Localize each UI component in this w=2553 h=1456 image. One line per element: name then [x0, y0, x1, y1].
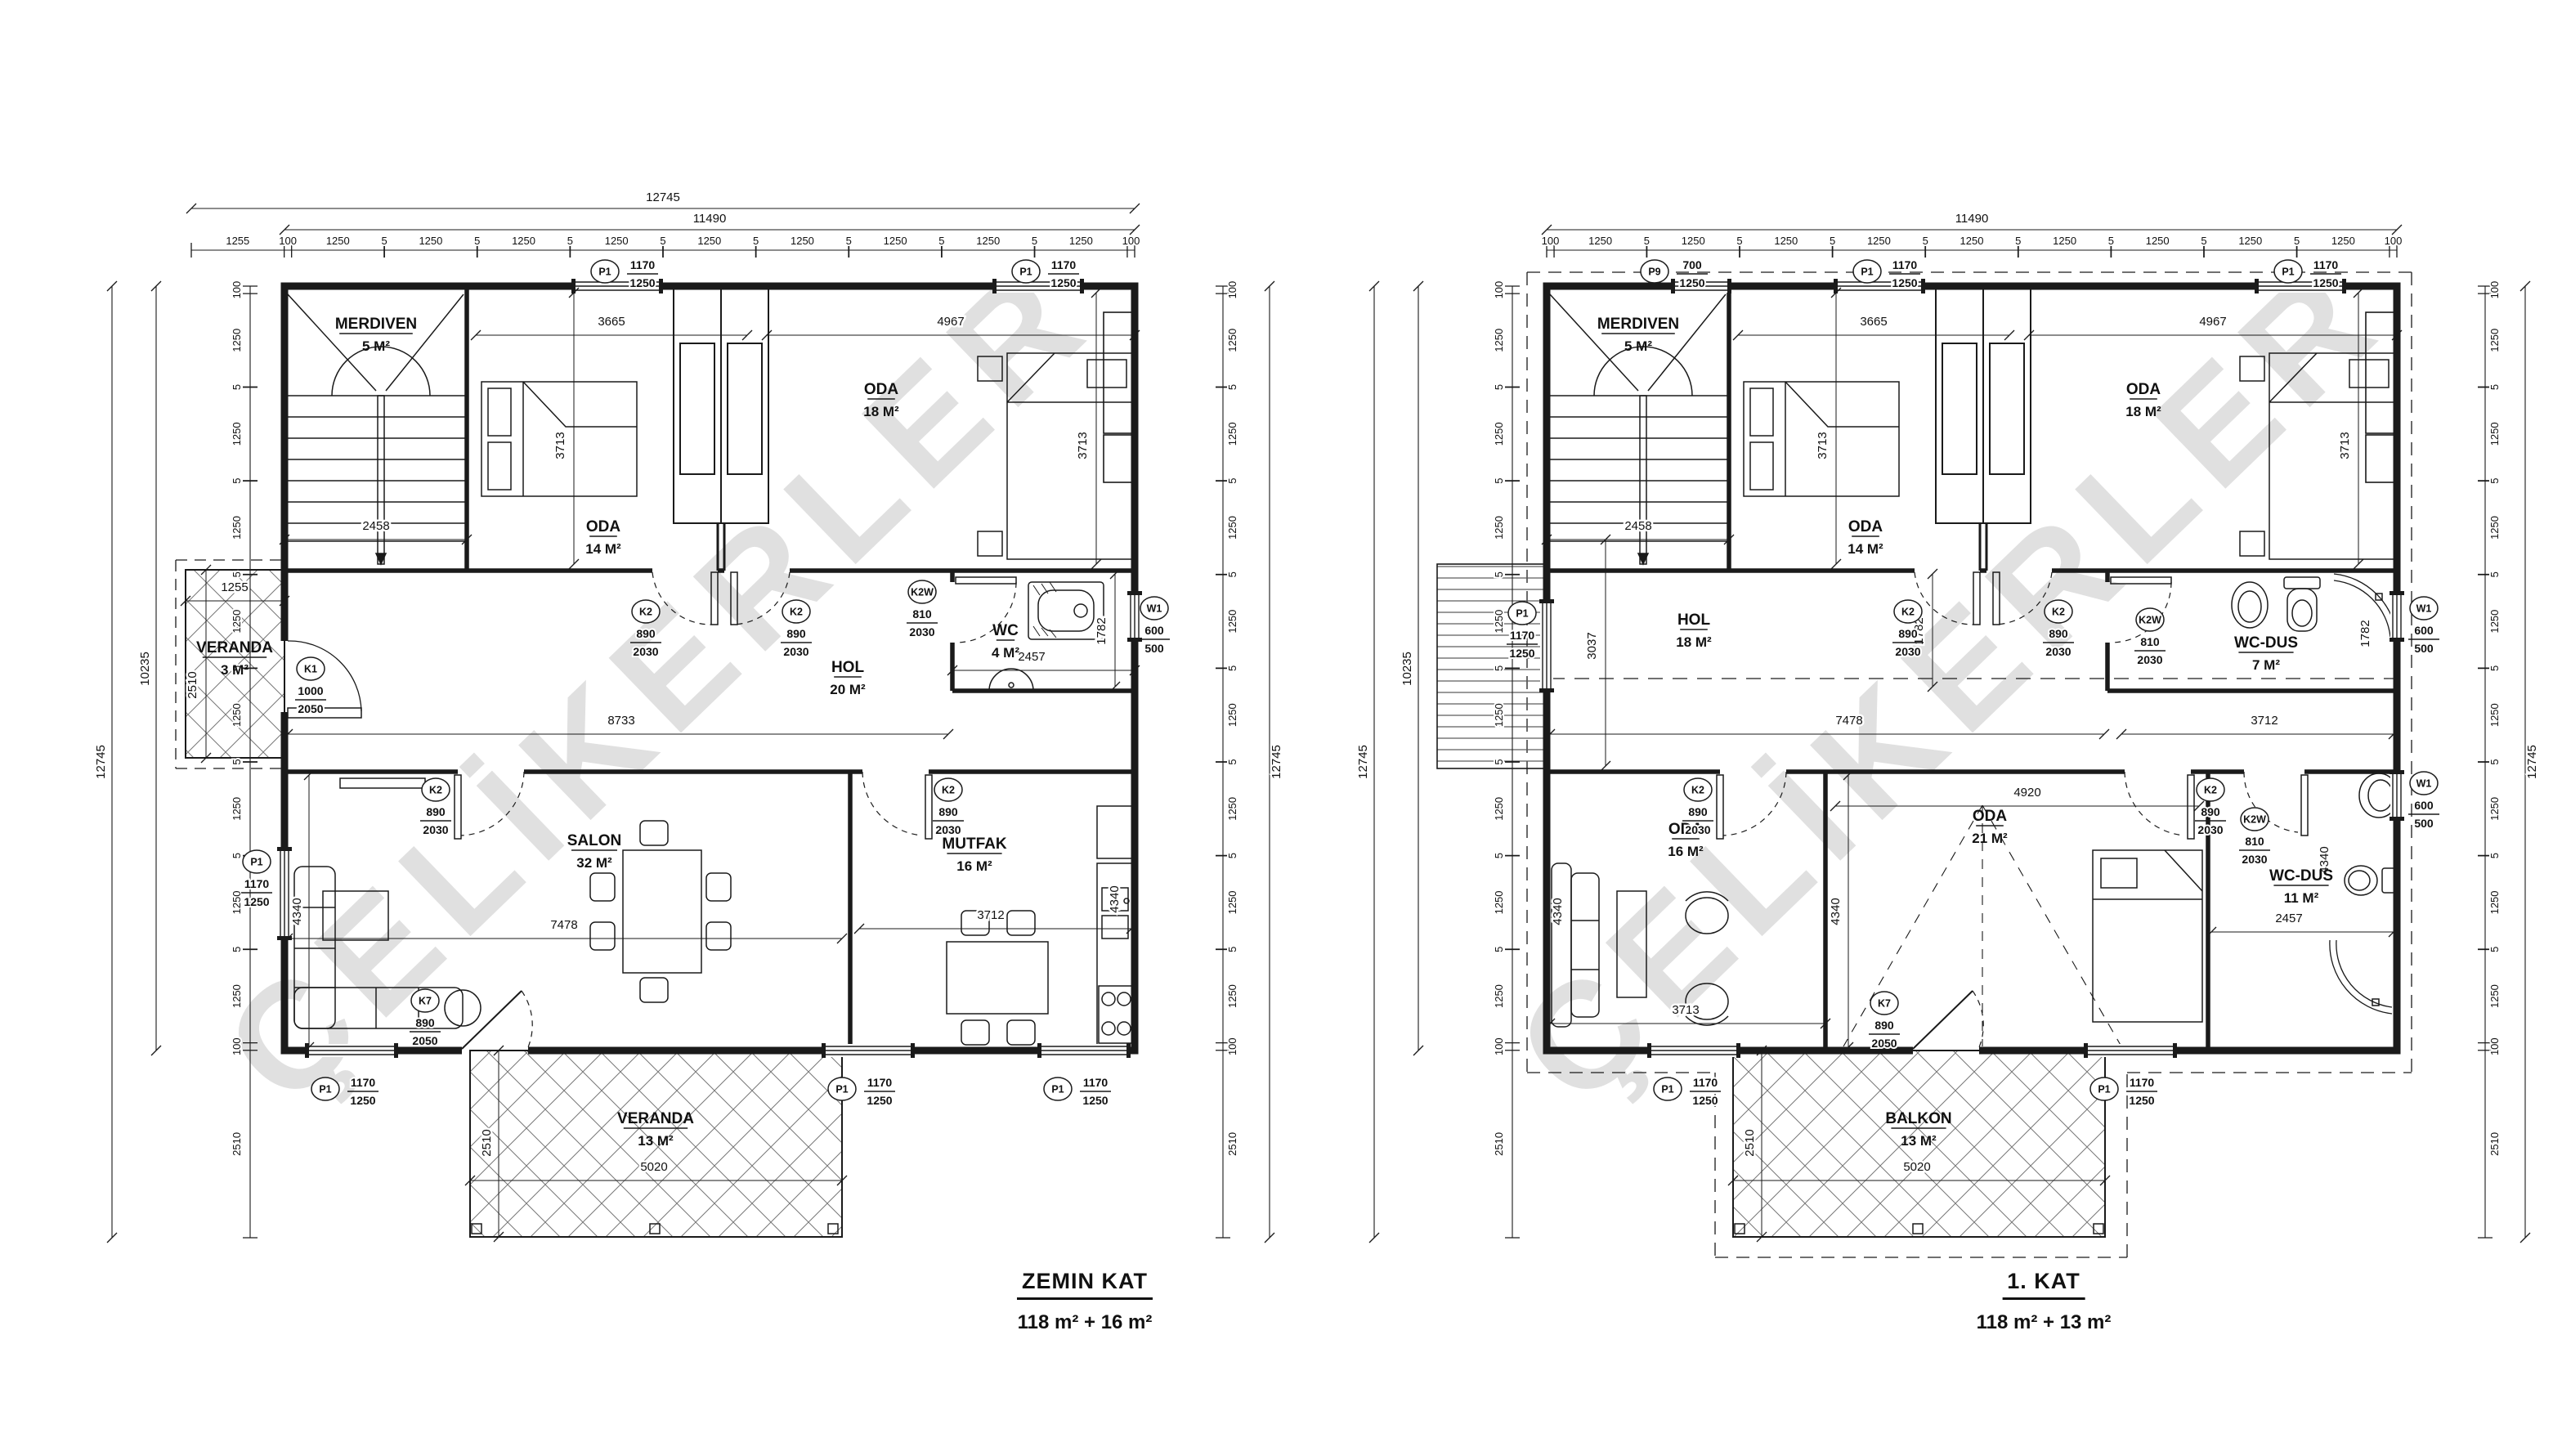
- room-name: WC-DUS: [2234, 634, 2298, 652]
- door-code: K7: [419, 996, 432, 1007]
- chain-seg-label: 5: [1226, 947, 1238, 952]
- chain-seg-label: 5: [2488, 947, 2501, 952]
- room-area: 18 M²: [2125, 404, 2161, 419]
- window-height: 1250: [1509, 647, 1534, 660]
- door-height: 2030: [2242, 853, 2267, 866]
- chain-seg-label: 1250: [231, 703, 243, 727]
- chain-seg-label: 1250: [2053, 235, 2076, 247]
- watermark: ÇELİKERLER: [195, 230, 1124, 1136]
- chain-seg-label: 100: [1542, 235, 1560, 247]
- chain-seg-label: 1250: [2488, 610, 2501, 634]
- chain-seg-label: 5: [1493, 853, 1505, 858]
- chain-seg-label: 1250: [2488, 890, 2501, 914]
- chain-seg-label: 5: [231, 853, 243, 858]
- door-width: 890: [426, 805, 446, 818]
- chain-seg-label: 5: [1644, 235, 1650, 247]
- span-label: 10235: [1400, 652, 1414, 686]
- chain-seg-label: 2510: [1226, 1132, 1238, 1156]
- chain-seg-label: 1250: [1226, 610, 1238, 634]
- room-area: 16 M²: [1668, 844, 1704, 859]
- title-area: 118 m² + 13 m²: [1977, 1311, 2112, 1334]
- door-width: 890: [1874, 1019, 1894, 1032]
- window-code: W1: [1147, 603, 1162, 615]
- window-height: 500: [2414, 642, 2434, 655]
- room-name: ODA: [1973, 808, 2008, 825]
- window-width: 1170: [244, 877, 270, 890]
- title-1-kat: 1. KAT 118 m² + 13 m²: [1977, 1269, 2112, 1334]
- chain-seg-label: 1250: [1226, 984, 1238, 1008]
- chain-seg-label: 1250: [2146, 235, 2170, 247]
- door-code: K2: [2204, 785, 2217, 796]
- chain-seg-label: 5: [1226, 478, 1238, 484]
- chain-seg-label: 5: [231, 759, 243, 764]
- room-area: 5 M²: [1624, 338, 1652, 354]
- door-height: 2030: [935, 823, 961, 836]
- dim-label: 3712: [2251, 714, 2278, 728]
- room-name: MERDIVEN: [335, 316, 417, 333]
- window-symbol: [2084, 1043, 2177, 1058]
- window-symbol: [2390, 770, 2404, 821]
- window-height: 1250: [2129, 1094, 2154, 1107]
- chain-seg-label: 1250: [231, 329, 243, 352]
- chain-seg-label: 1250: [1960, 235, 1984, 247]
- dim-label: 3713: [1672, 1003, 1699, 1017]
- chain-seg-label: 5: [938, 235, 944, 247]
- door-code: K1: [304, 664, 317, 675]
- dim-label: 8733: [607, 714, 634, 728]
- window-height: 500: [2414, 817, 2434, 830]
- chain-seg-label: 5: [231, 384, 243, 390]
- dim-label: 2458: [362, 519, 389, 533]
- chain-seg-label: 5: [2488, 384, 2501, 390]
- dim-label: 4920: [2013, 786, 2040, 800]
- chain-seg-label: 100: [231, 281, 243, 299]
- chain-seg-label: 1250: [231, 984, 243, 1008]
- window-symbol: [822, 1043, 915, 1058]
- room-area: 14 M²: [585, 541, 621, 557]
- door-width: 890: [938, 805, 958, 818]
- chain-seg-label: 1250: [2488, 984, 2501, 1008]
- room-name: HOL: [831, 659, 865, 676]
- chain-seg-label: 5: [1923, 235, 1928, 247]
- chain-seg-label: 1250: [1493, 984, 1505, 1008]
- door-height: 2030: [1895, 645, 1920, 658]
- span-label: 12745: [1270, 745, 1283, 779]
- dim-label: 3665: [1860, 315, 1887, 329]
- chain-seg-label: 1250: [2488, 329, 2501, 352]
- chain-seg-label: 5: [1493, 384, 1505, 390]
- room-name: ODA: [1848, 518, 1883, 535]
- room-area: 11 M²: [2284, 890, 2319, 906]
- chain-seg-label: 1250: [791, 235, 814, 247]
- span-label: 12745: [94, 745, 108, 779]
- chain-seg-label: 1255: [226, 235, 249, 247]
- chain-seg-label: 5: [2488, 853, 2501, 858]
- chain-seg-label: 1250: [1493, 329, 1505, 352]
- dim-label: 3037: [1585, 632, 1599, 659]
- chain-seg-label: 5: [660, 235, 665, 247]
- door-height: 2030: [783, 645, 808, 658]
- chain-seg-label: 1250: [1226, 890, 1238, 914]
- chain-seg-label: 1250: [1774, 235, 1798, 247]
- door-width: 1000: [298, 684, 323, 697]
- chain-seg-label: 5: [2015, 235, 2021, 247]
- chain-seg-label: 1250: [2488, 703, 2501, 727]
- room-area: 7 M²: [2252, 657, 2280, 673]
- window-symbol: [2390, 591, 2404, 642]
- chain-seg-label: 5: [1493, 759, 1505, 764]
- chain-seg-label: 5: [381, 235, 387, 247]
- window-symbol: [305, 1043, 398, 1058]
- door-code: K2: [1691, 785, 1704, 796]
- chain-seg-label: 5: [1226, 571, 1238, 577]
- door-code: K2W: [911, 587, 934, 598]
- chain-seg-label: 1250: [976, 235, 1000, 247]
- window-height: 1250: [2313, 276, 2338, 289]
- window-code: P1: [598, 267, 611, 278]
- dim-label: 7478: [550, 918, 577, 932]
- window-symbol: [277, 847, 292, 940]
- door-width: 890: [2049, 627, 2068, 640]
- chain-seg-label: 1250: [231, 890, 243, 914]
- watermark-layer: ÇELİKERLERÇELİKERLER: [195, 230, 2416, 1136]
- title-area: 118 m² + 16 m²: [1017, 1311, 1153, 1334]
- window-code: P1: [319, 1084, 331, 1095]
- door-code: K2: [2052, 607, 2065, 618]
- chain-seg-label: 1250: [2488, 797, 2501, 821]
- window-height: 1250: [350, 1094, 375, 1107]
- chain-seg-label: 5: [846, 235, 852, 247]
- dim-label: 2510: [186, 671, 199, 698]
- window-code: P1: [250, 857, 262, 868]
- chain-seg-label: 1250: [1682, 235, 1705, 247]
- room-area: 4 M²: [992, 645, 1019, 661]
- chain-seg-label: 1250: [231, 797, 243, 821]
- chain-seg-label: 5: [1736, 235, 1742, 247]
- window-symbol: [1037, 1043, 1131, 1058]
- chain-seg-label: 5: [1226, 665, 1238, 671]
- room-name: WC-DUS: [2269, 867, 2333, 885]
- chain-seg-label: 100: [1493, 281, 1505, 299]
- window-width: 1170: [351, 1076, 376, 1089]
- window-width: 1170: [1510, 629, 1535, 642]
- window-code: P1: [1661, 1084, 1673, 1095]
- window-width: 1170: [1693, 1076, 1718, 1089]
- window-width: 1170: [2130, 1076, 2155, 1089]
- window-symbol: [1647, 1043, 1740, 1058]
- span-label: 11490: [693, 212, 727, 226]
- door-width: 810: [2140, 635, 2160, 648]
- chain-seg-label: 1250: [2488, 516, 2501, 540]
- chain-seg-label: 1250: [697, 235, 721, 247]
- dim-label: 4340: [290, 898, 304, 925]
- door-width: 810: [912, 607, 932, 620]
- door-code: K2W: [2139, 615, 2161, 626]
- dim-label: 2457: [1018, 650, 1045, 664]
- room-area: 21 M²: [1972, 831, 2008, 846]
- door-height: 2050: [412, 1034, 437, 1047]
- window-width: 1170: [1083, 1076, 1109, 1089]
- room-name: MUTFAK: [942, 836, 1006, 853]
- room-area: 5 M²: [362, 338, 390, 354]
- dim-label: 1782: [1095, 617, 1109, 644]
- chain-seg-label: 5: [1493, 478, 1505, 484]
- dim-label: 4340: [1829, 898, 1843, 925]
- wc11-fixtures: [2330, 773, 2398, 1014]
- window-height: 1250: [1679, 276, 1704, 289]
- chain-seg-label: 2510: [2488, 1132, 2501, 1156]
- chain-seg-label: 5: [1226, 759, 1238, 764]
- chain-seg-label: 1250: [2331, 235, 2355, 247]
- chain-seg-label: 5: [2488, 665, 2501, 671]
- door-width: 890: [415, 1016, 435, 1029]
- chain-seg-label: 1250: [1226, 703, 1238, 727]
- window-height: 500: [1144, 642, 1164, 655]
- window-height: 1250: [1082, 1094, 1108, 1107]
- room-area: 18 M²: [1676, 634, 1712, 650]
- chain-seg-label: 5: [1032, 235, 1037, 247]
- room-name: VERANDA: [617, 1110, 694, 1127]
- window-code: W1: [2416, 778, 2432, 790]
- room-area: 14 M²: [1848, 541, 1883, 557]
- chain-seg-label: 1250: [1493, 703, 1505, 727]
- window-symbol: [1127, 591, 1142, 642]
- chain-seg-label: 1250: [1493, 890, 1505, 914]
- chain-seg-label: 5: [2488, 571, 2501, 577]
- chain-seg-label: 5: [1226, 384, 1238, 390]
- floorplan-canvas: ÇELİKERLERÇELİKERLER: [0, 0, 2553, 1456]
- chain-seg-label: 5: [1830, 235, 1835, 247]
- window-width: 600: [1144, 624, 1164, 637]
- chain-seg-label: 100: [2385, 235, 2403, 247]
- room-name: SALON: [567, 832, 622, 849]
- door-code: K7: [1878, 998, 1891, 1010]
- dim-label: 3713: [2338, 432, 2352, 459]
- window-width: 1170: [630, 258, 656, 271]
- chain-seg-label: 5: [1493, 665, 1505, 671]
- chain-seg-label: 1250: [2238, 235, 2262, 247]
- dim-label: 2458: [1624, 519, 1651, 533]
- room-name: ODA: [864, 381, 899, 398]
- door-height: 2030: [2137, 653, 2162, 666]
- door-height: 2050: [1871, 1037, 1897, 1050]
- chain-seg-label: 100: [2488, 1037, 2501, 1055]
- window-code: P1: [1516, 608, 1528, 620]
- door-height: 2030: [2197, 823, 2223, 836]
- chain-seg-label: 100: [1226, 1037, 1238, 1055]
- dim-label: 1782: [2358, 620, 2372, 647]
- door-height: 2030: [633, 645, 658, 658]
- chain-seg-label: 5: [231, 947, 243, 952]
- chain-seg-label: 5: [1226, 853, 1238, 858]
- door-width: 810: [2245, 835, 2264, 848]
- door-height: 2030: [2045, 645, 2071, 658]
- room-area: 18 M²: [863, 404, 899, 419]
- door-height: 2030: [423, 823, 448, 836]
- window-width: 600: [2414, 799, 2434, 812]
- chain-seg-label: 1250: [1493, 516, 1505, 540]
- dim-label: 4967: [937, 315, 964, 329]
- room-name: HOL: [1677, 612, 1711, 629]
- chain-seg-label: 5: [2201, 235, 2206, 247]
- window-height: 1250: [629, 276, 655, 289]
- room-name: BALKON: [1885, 1110, 1951, 1127]
- dim-label: 3712: [977, 908, 1004, 922]
- window-code: P1: [1019, 267, 1032, 278]
- dim-label: 4967: [2199, 315, 2226, 329]
- window-height: 1250: [1692, 1094, 1718, 1107]
- chain-seg-label: 5: [2108, 235, 2114, 247]
- chain-seg-label: 5: [231, 571, 243, 577]
- chain-seg-label: 100: [2488, 281, 2501, 299]
- chain-seg-label: 1250: [419, 235, 442, 247]
- dim-label: 4340: [1551, 898, 1565, 925]
- dim-label: 5020: [640, 1160, 667, 1174]
- door-height: 2050: [298, 702, 323, 715]
- room-area: 20 M²: [830, 682, 866, 697]
- dim-label: 3665: [598, 315, 625, 329]
- chain-seg-label: 1250: [1493, 610, 1505, 634]
- dim-label: 7478: [1835, 714, 1862, 728]
- window-code: P9: [1648, 267, 1660, 278]
- span-label: 11490: [1955, 212, 1989, 226]
- span-label: 10235: [138, 652, 152, 686]
- chain-seg-label: 1250: [605, 235, 629, 247]
- span-label: 12745: [2525, 745, 2539, 779]
- dim-label: 3713: [553, 432, 567, 459]
- chain-seg-label: 5: [1493, 947, 1505, 952]
- chain-seg-label: 5: [753, 235, 759, 247]
- chain-seg-label: 5: [474, 235, 480, 247]
- window-width: 1170: [2313, 258, 2339, 271]
- window-width: 700: [1682, 258, 1702, 271]
- room-name: WC: [992, 622, 1019, 639]
- chain-seg-label: 1250: [1226, 516, 1238, 540]
- room-name: MERDIVEN: [1597, 316, 1679, 333]
- chain-seg-label: 1250: [1493, 422, 1505, 446]
- chain-seg-label: 1250: [884, 235, 907, 247]
- chain-seg-label: 100: [1122, 235, 1140, 247]
- title-zemin-kat: ZEMIN KAT 118 m² + 16 m²: [1017, 1269, 1153, 1334]
- door-height: 2030: [1685, 823, 1710, 836]
- room-name: ODA: [586, 518, 621, 535]
- door-code: K2: [942, 785, 955, 796]
- chain-seg-label: 1250: [1226, 329, 1238, 352]
- title-text: ZEMIN KAT: [1017, 1269, 1153, 1300]
- window-width: 1170: [1051, 258, 1077, 271]
- floorplan-sheet: ÇELİKERLERÇELİKERLER: [0, 0, 2553, 1456]
- chain-seg-label: 1250: [1226, 422, 1238, 446]
- room-area: 32 M²: [576, 855, 612, 871]
- chain-seg-label: 1250: [1493, 797, 1505, 821]
- chain-seg-label: 1250: [512, 235, 535, 247]
- room-area: 3 M²: [221, 662, 249, 678]
- chain-seg-label: 100: [1226, 281, 1238, 299]
- dim-label: 3713: [1076, 432, 1090, 459]
- door-height: 2030: [909, 625, 934, 638]
- room-area: 13 M²: [638, 1133, 674, 1149]
- window-height: 1250: [1892, 276, 1917, 289]
- chain-seg-label: 100: [279, 235, 297, 247]
- chain-seg-label: 100: [231, 1037, 243, 1055]
- chain-seg-label: 5: [231, 478, 243, 484]
- chain-seg-label: 1250: [231, 610, 243, 634]
- dim-label: 1255: [221, 580, 248, 594]
- door-width: 890: [2201, 805, 2220, 818]
- chain-seg-label: 5: [2488, 759, 2501, 764]
- window-code: W1: [2416, 603, 2432, 615]
- annotation-layer: 3665496737133713245812552510873324571782…: [94, 190, 2539, 1243]
- door-code: K2: [639, 607, 652, 618]
- window-width: 1170: [867, 1076, 893, 1089]
- chain-seg-label: 2510: [231, 1132, 243, 1156]
- chain-seg-label: 5: [567, 235, 573, 247]
- window-height: 1250: [244, 895, 269, 908]
- chain-seg-label: 5: [1493, 571, 1505, 577]
- room-name: ODA: [2126, 381, 2161, 398]
- door-code: K2W: [2243, 814, 2266, 826]
- dim-label: 2510: [1743, 1129, 1757, 1156]
- door-width: 890: [1688, 805, 1708, 818]
- dim-label: 5020: [1903, 1160, 1930, 1174]
- span-label: 12745: [646, 190, 680, 204]
- door-code: K2: [1901, 607, 1915, 618]
- dim-label: 2457: [2275, 912, 2302, 925]
- chain-seg-label: 5: [2294, 235, 2300, 247]
- chain-seg-label: 1250: [1226, 797, 1238, 821]
- room-area: 16 M²: [956, 858, 992, 874]
- door-width: 890: [636, 627, 656, 640]
- chain-seg-label: 1250: [1867, 235, 1891, 247]
- room-area: 13 M²: [1901, 1133, 1937, 1149]
- dim-label: 3713: [1816, 432, 1830, 459]
- watermark: ÇELİKERLER: [1486, 230, 2416, 1136]
- chain-seg-label: 1250: [1588, 235, 1612, 247]
- window-symbol: [1539, 599, 1554, 692]
- window-code: P1: [2282, 267, 2294, 278]
- chain-seg-label: 1250: [231, 422, 243, 446]
- door-code: K2: [429, 785, 442, 796]
- window-width: 1170: [1892, 258, 1918, 271]
- title-text: 1. KAT: [2002, 1269, 2085, 1300]
- window-height: 1250: [867, 1094, 892, 1107]
- window-height: 1250: [1050, 276, 1076, 289]
- door-width: 890: [786, 627, 806, 640]
- span-label: 12745: [1356, 745, 1370, 779]
- chain-seg-label: 1250: [326, 235, 350, 247]
- window-code: P1: [2098, 1084, 2110, 1095]
- chain-seg-label: 1250: [2488, 422, 2501, 446]
- room-name: VERANDA: [196, 639, 273, 656]
- dim-label: 4340: [1108, 885, 1122, 912]
- window-code: P1: [1861, 267, 1873, 278]
- pergola: [1437, 564, 1547, 768]
- window-code: P1: [1051, 1084, 1064, 1095]
- dim-label: 2510: [480, 1129, 494, 1156]
- window-code: P1: [835, 1084, 848, 1095]
- chain-seg-label: 100: [1493, 1037, 1505, 1055]
- chain-seg-label: 1250: [231, 516, 243, 540]
- window-width: 600: [2414, 624, 2434, 637]
- door-code: K2: [790, 607, 803, 618]
- chain-seg-label: 2510: [1493, 1132, 1505, 1156]
- chain-seg-label: 5: [2488, 478, 2501, 484]
- door-width: 890: [1898, 627, 1918, 640]
- chain-seg-label: 1250: [1069, 235, 1093, 247]
